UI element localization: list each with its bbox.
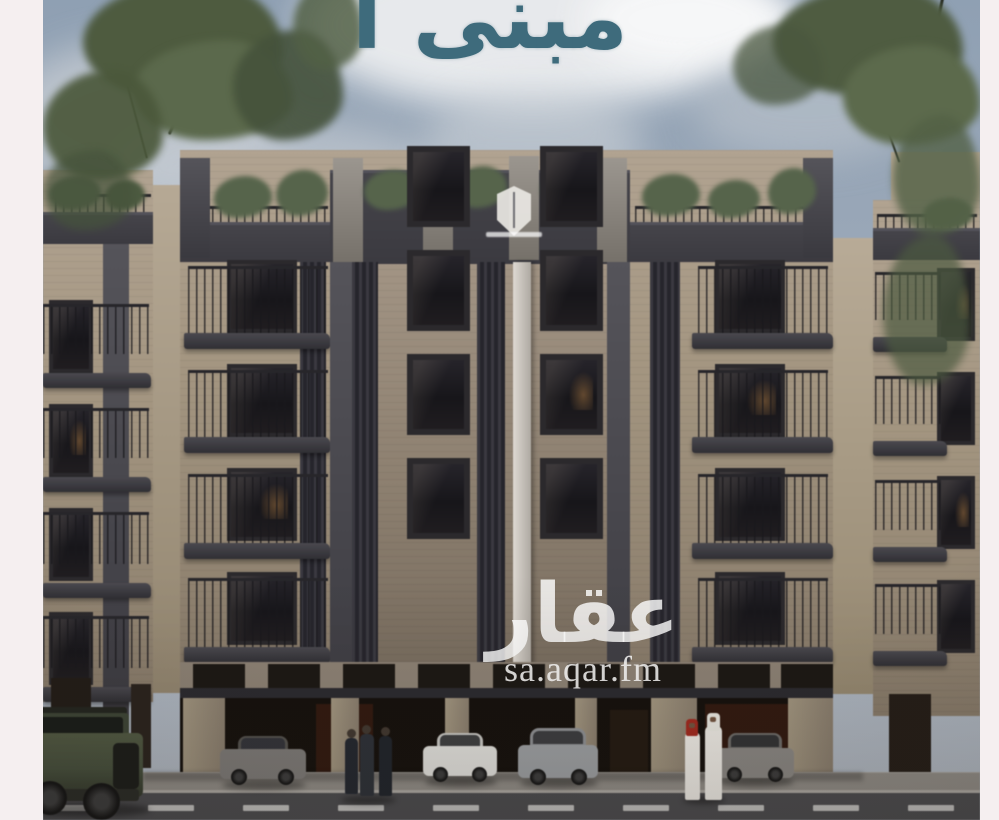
vehicle-white-sedan: [423, 733, 499, 789]
lane-marking: [908, 805, 954, 811]
wheel: [727, 767, 742, 782]
balcony-railing: [698, 578, 828, 648]
entrance-door: [889, 694, 931, 772]
window: [540, 354, 603, 435]
window-reflection: [941, 584, 971, 649]
wheel: [571, 769, 587, 785]
balcony-slab: [184, 543, 330, 559]
mezzanine-window: [718, 664, 770, 689]
ghutra-white: [707, 713, 720, 731]
balcony-railing: [188, 474, 328, 544]
person: [345, 738, 358, 794]
balcony-slab: [873, 651, 947, 666]
window: [407, 354, 470, 435]
tree-foliage: [733, 25, 823, 105]
balcony-slab: [873, 441, 947, 456]
car-glass: [533, 731, 583, 744]
balcony-railing: [875, 584, 941, 634]
mezzanine-window: [418, 664, 470, 689]
tree-foliage: [883, 235, 970, 385]
wheel: [530, 769, 546, 785]
balcony-slab: [692, 437, 833, 453]
balcony-railing: [43, 616, 149, 668]
window-reflection: [413, 464, 464, 533]
window: [937, 476, 975, 549]
balcony-slab: [43, 373, 151, 388]
lane-marking: [813, 805, 859, 811]
window: [540, 146, 603, 227]
lane-marking: [433, 805, 479, 811]
pedestrians-casual: [341, 726, 397, 806]
balcony-slab: [184, 333, 330, 349]
left-border: [0, 0, 43, 820]
person-head: [347, 729, 356, 738]
window: [540, 458, 603, 539]
balcony-slab: [184, 437, 330, 453]
car-glass: [241, 738, 285, 749]
lane-marking: [148, 805, 194, 811]
vehicle-gray-sedan: [220, 736, 308, 792]
listing-photo: مبنى أ عقار sa.aqar.fm: [43, 0, 980, 820]
mezzanine-window: [268, 664, 320, 689]
building-title: مبنى أ: [352, 0, 628, 69]
window-reflection: [546, 152, 597, 221]
balcony-railing: [43, 408, 149, 458]
vehicle-gray-hatchback: [716, 733, 796, 789]
balcony-railing: [43, 512, 149, 564]
person-head: [362, 725, 371, 734]
balcony-railing: [188, 578, 328, 648]
window: [937, 580, 975, 653]
balcony-slab: [692, 647, 833, 663]
window-reflection: [546, 256, 597, 325]
window-reflection: [413, 256, 464, 325]
listing-page: { "page": { "frame_color": "#f5eff0" }, …: [0, 0, 999, 820]
entrance-door: [610, 710, 648, 772]
balcony-slab: [184, 647, 330, 663]
mezzanine-window: [781, 664, 833, 689]
pedestrians-thobe: [683, 714, 727, 806]
aqar-logo-text: عقار: [486, 574, 679, 656]
vehicle-green-suv: [43, 695, 151, 820]
person-thobe: [685, 732, 700, 800]
window: [407, 458, 470, 539]
balcony-railing: [43, 304, 149, 354]
vehicle-silver-suv: [518, 728, 600, 790]
balcony-railing: [188, 370, 328, 438]
wheel: [83, 783, 120, 820]
window-light: [569, 372, 593, 409]
tree-left: [43, 0, 363, 270]
person-face: [710, 717, 716, 722]
car-glass: [731, 735, 779, 747]
person-thobe: [705, 726, 722, 800]
person-head: [381, 727, 390, 736]
lane-marking: [243, 805, 289, 811]
person-shadow: [341, 796, 396, 804]
wheel: [433, 767, 448, 782]
wheel: [278, 769, 294, 785]
wheel: [231, 769, 247, 785]
window-reflection: [413, 360, 464, 429]
wheel: [472, 767, 487, 782]
balcony-railing: [188, 266, 328, 334]
mezzanine-window: [193, 664, 245, 689]
render-scene: [43, 0, 980, 820]
window: [540, 250, 603, 331]
car-glass: [440, 735, 480, 746]
balcony-railing: [875, 480, 941, 530]
window: [407, 250, 470, 331]
window: [407, 146, 470, 227]
balcony-slab: [43, 477, 151, 492]
developer-logo-caption: [486, 232, 542, 237]
window-reflection: [413, 152, 464, 221]
watermark-site-url: sa.aqar.fm: [486, 648, 679, 690]
wheel: [768, 767, 783, 782]
person: [379, 736, 392, 796]
developer-logo-slit: [513, 192, 515, 228]
mezzanine-window: [343, 664, 395, 689]
window-light: [955, 492, 969, 527]
tree-right: [733, 0, 980, 430]
watermark: عقار sa.aqar.fm: [486, 574, 679, 690]
person: [360, 734, 374, 796]
tree-foliage: [43, 150, 133, 230]
lane-marking: [623, 805, 669, 811]
right-border: [980, 0, 999, 820]
spare-tire: [113, 743, 139, 789]
lane-marking: [528, 805, 574, 811]
window-reflection: [546, 464, 597, 533]
balcony-slab: [692, 543, 833, 559]
balcony-railing: [698, 474, 828, 544]
garage-column: [183, 698, 225, 772]
balcony-slab: [873, 547, 947, 562]
balcony-slab: [43, 583, 151, 598]
person-face: [689, 723, 695, 728]
